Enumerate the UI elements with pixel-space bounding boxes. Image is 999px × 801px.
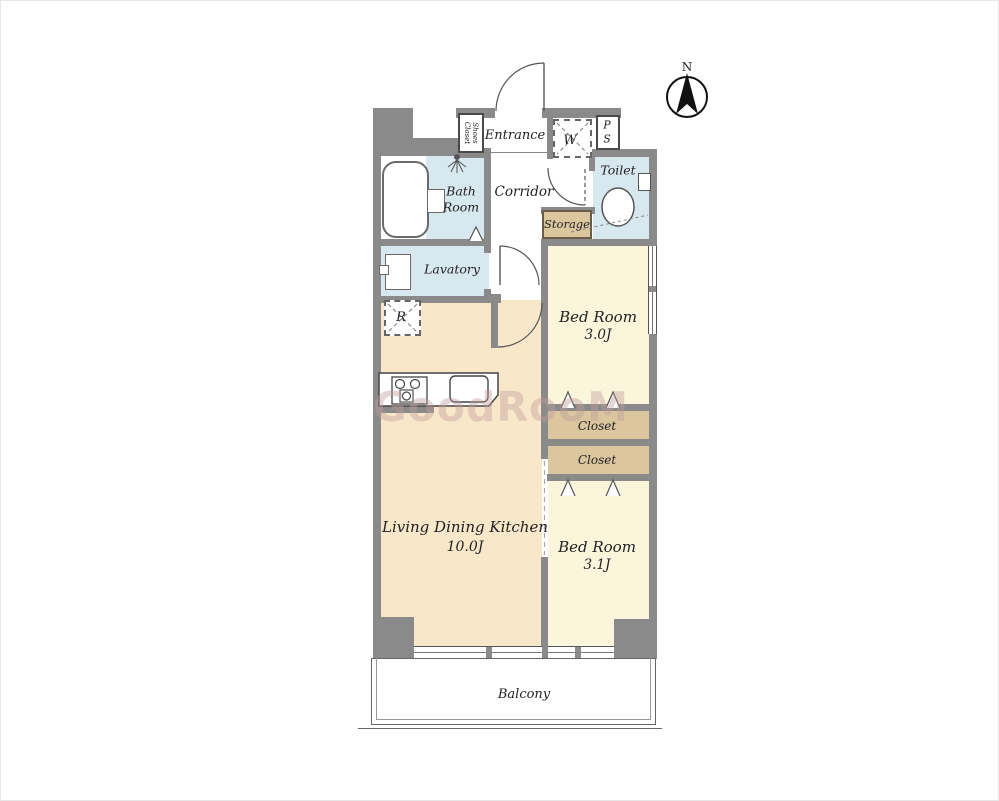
shoes-closet-label: Shoes Closet [463,122,479,144]
bedroom1-label: Bed Room 3.0J [559,308,637,344]
bedroom2-label: Bed Room 3.1J [558,538,636,574]
toilet-door-arc [548,168,585,205]
compass-icon [667,73,707,117]
ldk-label: Living Dining Kitchen 10.0J [382,518,548,556]
balcony-label: Balcony [498,687,550,703]
corridor-label: Corridor [495,184,554,200]
refrigerator-label: R [396,310,406,326]
closet2-door-mark [561,480,575,496]
toilet-bowl [602,188,634,226]
ldk-door-arc [498,303,542,347]
entrance-label: Entrance [485,128,545,144]
lavatory-label: Lavatory [424,262,480,277]
toilet-label: Toilet [600,163,635,178]
floorplan: Entrance Shoes Closet W P S Toilet Bath … [0,0,999,801]
bath-folding-door-mark [469,227,483,241]
shower-icon [448,155,466,174]
bath-room-label: Bath Room [443,183,479,214]
closet2-door-mark [606,480,620,496]
entrance-door-arc [496,63,544,111]
compass-north-label: N [682,60,693,74]
pipe-space-label: P S [603,118,611,146]
closet2-label: Closet [578,453,616,467]
corridor-door-arc [500,246,539,285]
washing-machine-label: W [563,133,576,149]
watermark: GoodRooM [373,383,629,431]
storage-label: Storage [544,218,590,232]
